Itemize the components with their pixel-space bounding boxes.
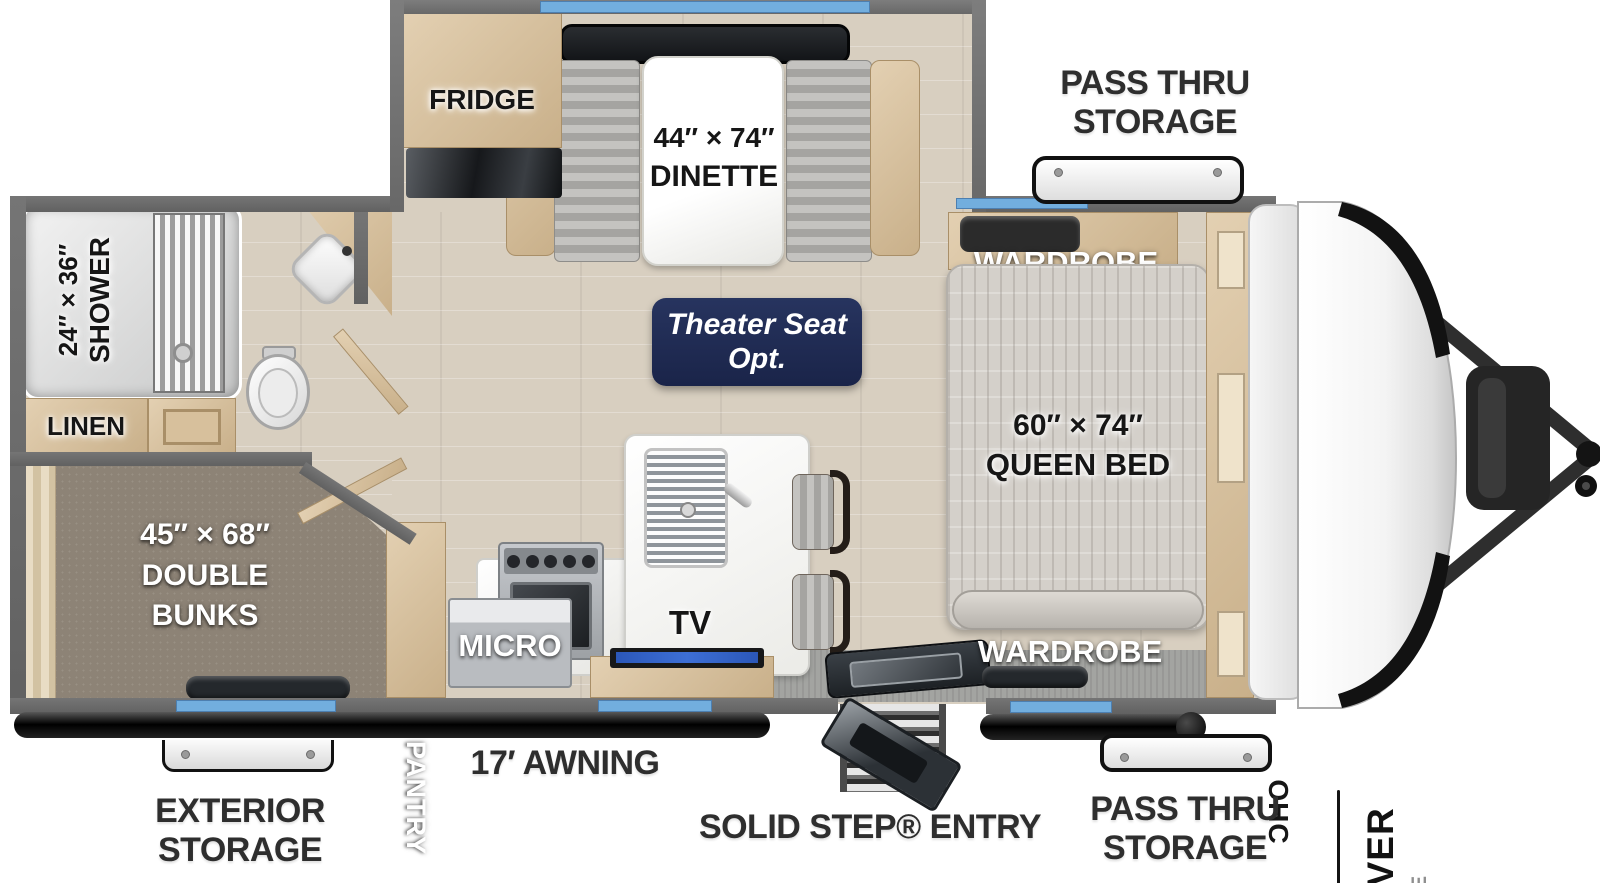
floorplan-diagram: 24″ × 36″ SHOWER LINEN 45″ × 68″ DOUBLE … bbox=[0, 0, 1600, 883]
pass-thru-door-top bbox=[1032, 156, 1244, 204]
fridge-open-door bbox=[406, 148, 562, 198]
shower-name: SHOWER bbox=[84, 237, 116, 363]
slide-left-wall bbox=[390, 0, 404, 212]
exterior-storage-door bbox=[162, 740, 334, 772]
dinette-label: 44″ × 74″ DINETTE bbox=[636, 110, 792, 206]
bath-bottom-wall bbox=[10, 452, 312, 466]
dinette-bench-left bbox=[554, 60, 640, 262]
theater-chair-1 bbox=[792, 470, 854, 554]
front-cap-body bbox=[1298, 202, 1456, 708]
solid-step-entry-label: SOLID STEP® ENTRY bbox=[650, 804, 1090, 852]
window-slide-top bbox=[540, 1, 870, 13]
window-bunk-bottom bbox=[176, 700, 336, 712]
bunks-label: 45″ × 68″ DOUBLE BUNKS bbox=[40, 506, 370, 646]
shower-glass-door bbox=[153, 213, 225, 393]
top-wall-left bbox=[10, 196, 390, 212]
brand-name: FOREST RIVER bbox=[1360, 807, 1402, 883]
micro-label: MICRO bbox=[440, 624, 580, 668]
sink-drain bbox=[680, 502, 696, 518]
window-kitchen-bottom bbox=[598, 700, 712, 712]
brand-model: SOLAIRE bbox=[1408, 865, 1432, 883]
window-bedroom-bottom bbox=[1010, 701, 1112, 713]
pass-thru-storage-label-top: PASS THRU STORAGE bbox=[1000, 58, 1310, 148]
burner-row bbox=[504, 548, 598, 574]
dinette-seat-end-right bbox=[870, 60, 920, 256]
queen-bed-name: QUEEN BED bbox=[986, 445, 1170, 485]
queen-bed-label: 60″ × 74″ QUEEN BED bbox=[946, 398, 1210, 494]
shower-dims: 24″ × 36″ bbox=[53, 244, 84, 356]
dinette-dims: 44″ × 74″ bbox=[653, 120, 774, 156]
shower-label: 24″ × 36″ SHOWER bbox=[28, 206, 140, 394]
queen-bed-dims: 60″ × 74″ bbox=[1013, 406, 1143, 445]
bath-wall-stub bbox=[354, 212, 368, 304]
tv-screen bbox=[610, 648, 764, 668]
bath-vanity bbox=[148, 398, 236, 454]
pass-thru-door-bottom bbox=[1100, 734, 1272, 772]
pantry-cabinet bbox=[386, 522, 446, 698]
slide-right-wall bbox=[972, 0, 986, 212]
bath-faucet bbox=[342, 246, 352, 256]
awning-rod-left bbox=[14, 712, 770, 738]
awning-label: 17′ AWNING bbox=[430, 740, 700, 788]
bunk-handle bbox=[186, 676, 350, 700]
tv-label: TV bbox=[652, 602, 728, 644]
fridge-label: FRIDGE bbox=[402, 76, 562, 124]
theater-seat-option-badge: Theater Seat Opt. bbox=[652, 298, 862, 386]
toilet bbox=[246, 346, 312, 432]
shower-drain bbox=[173, 343, 193, 363]
wardrobe-bottom-handle bbox=[982, 666, 1088, 688]
wardrobe-bottom-label: WARDROBE bbox=[948, 634, 1192, 670]
bed-blanket-roll bbox=[952, 590, 1204, 630]
dinette-name: DINETTE bbox=[650, 157, 778, 196]
dinette-bench-right bbox=[786, 60, 872, 262]
bed-frame-right bbox=[1206, 212, 1254, 698]
linen-label: LINEN bbox=[24, 402, 148, 450]
exterior-storage-label: EXTERIOR STORAGE bbox=[110, 786, 370, 876]
front-cap-and-hitch bbox=[1290, 186, 1600, 722]
theater-chair-2 bbox=[792, 570, 854, 654]
bunks-dims: 45″ × 68″ bbox=[140, 515, 270, 556]
